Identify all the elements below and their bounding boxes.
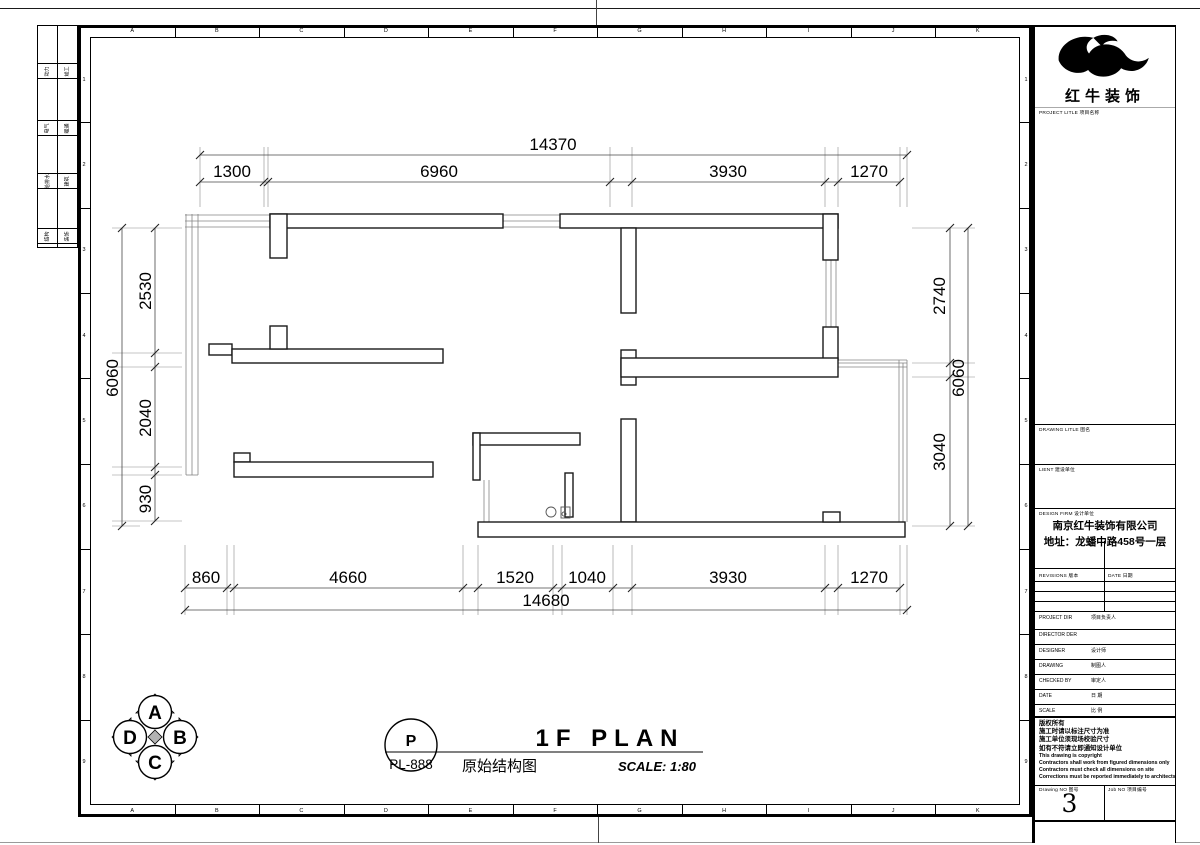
grid-number: 7 <box>78 589 90 595</box>
signature-cell <box>38 189 58 228</box>
signature-empty-row <box>38 26 77 64</box>
copyright-note-line: Corrections must be reported immediately… <box>1039 774 1175 781</box>
copyright-notes: 版权所有施工时请以标注尺寸为准施工单位须现场校验尺寸如有不符请立即通知设计单位T… <box>1035 718 1175 781</box>
fold-mark-top <box>596 0 597 25</box>
row-label-cn: 比 例 <box>1091 708 1102 714</box>
grid-tick <box>344 25 345 37</box>
grid-number: 6 <box>1020 503 1032 509</box>
grid-tick <box>1020 293 1032 294</box>
signature-cell <box>58 26 78 63</box>
grid-tick <box>1020 549 1032 550</box>
number-column-divider <box>1104 785 1105 820</box>
signature-cell <box>38 244 58 247</box>
grid-tick <box>513 25 514 37</box>
grid-tick <box>597 805 598 817</box>
signature-cell: 暖通 <box>58 121 78 135</box>
sheet-top-edge <box>0 8 1200 9</box>
grid-tick <box>78 634 90 635</box>
redniu-logo <box>1053 31 1158 83</box>
grid-letter: D <box>384 805 388 817</box>
grid-tick <box>259 25 260 37</box>
grid-number: 2 <box>78 162 90 168</box>
grid-tick <box>78 720 90 721</box>
divider <box>1035 508 1175 509</box>
grid-tick <box>513 805 514 817</box>
grid-tick <box>344 805 345 817</box>
signature-cell: 动力 <box>38 64 58 78</box>
titleblock-row: PROJECT DIR项目负责人 <box>1035 612 1175 629</box>
grid-letter: E <box>469 25 473 37</box>
divider <box>1035 107 1175 108</box>
grid-tick <box>78 464 90 465</box>
grid-tick <box>935 25 936 37</box>
copyright-note-line: 如有不符请立即通知设计单位 <box>1039 745 1175 753</box>
revisions-label: REVISIONS 版本 <box>1039 572 1078 579</box>
grid-tick <box>78 293 90 294</box>
grid-tick <box>78 208 90 209</box>
grid-tick <box>175 805 176 817</box>
company-name: 南京红牛装饰有限公司 <box>1035 518 1175 533</box>
row-label-cn: 项目负责人 <box>1091 615 1116 621</box>
grid-tick <box>1020 208 1032 209</box>
grid-band-left: 123456789 <box>78 37 90 805</box>
row-label-en: SCALE <box>1039 708 1091 714</box>
grid-tick <box>78 549 90 550</box>
grid-tick <box>78 122 90 123</box>
grid-band-bottom: ABCDEFGHIJK <box>90 805 1020 817</box>
grid-number: 1 <box>1020 77 1032 83</box>
signature-label-row: 结构装饰 <box>38 229 77 244</box>
grid-number: 1 <box>78 77 90 83</box>
design-firm-label: DESIGN FIRM 设计单位 <box>1039 510 1094 517</box>
grid-letter: K <box>976 805 980 817</box>
grid-letter: B <box>215 25 219 37</box>
client-label: LIENT 建设单位 <box>1039 466 1075 473</box>
grid-letter: I <box>808 805 810 817</box>
grid-tick <box>175 25 176 37</box>
row-label-en: CHECKED BY <box>1039 678 1091 684</box>
grid-tick <box>428 25 429 37</box>
grid-letter: F <box>553 805 556 817</box>
grid-tick <box>1020 464 1032 465</box>
row-label-en: DESIGNER <box>1039 648 1091 654</box>
signature-cell <box>58 136 78 173</box>
title-block: 红牛装饰 PROJECT LITLE 项目名称 DRAWING LITLE 图名… <box>1032 25 1176 843</box>
grid-letter: J <box>892 25 895 37</box>
copyright-note-line: 版权所有 <box>1039 720 1175 728</box>
grid-tick <box>1020 378 1032 379</box>
grid-letter: C <box>299 805 303 817</box>
signature-empty-row <box>38 79 77 121</box>
signature-cell <box>58 79 78 120</box>
grid-letter: G <box>637 805 641 817</box>
signature-label-row: 给排水建筑 <box>38 174 77 189</box>
signature-label: 动力 <box>44 66 51 76</box>
grid-number: 2 <box>1020 162 1032 168</box>
grid-letter: I <box>808 25 810 37</box>
grid-tick <box>78 378 90 379</box>
signature-label-row: 电气暖通 <box>38 121 77 136</box>
signature-cell: 给排水 <box>38 174 58 188</box>
grid-letter: A <box>130 25 134 37</box>
grid-number: 4 <box>78 333 90 339</box>
titleblock-row: DESIGNER设计师 <box>1035 644 1175 659</box>
grid-number: 8 <box>1020 674 1032 680</box>
grid-tick <box>428 805 429 817</box>
grid-letter: K <box>976 25 980 37</box>
signature-cell <box>58 189 78 228</box>
grid-number: 4 <box>1020 333 1032 339</box>
grid-letter: H <box>722 805 726 817</box>
row-label-cn: 设计师 <box>1091 648 1106 654</box>
signature-label: 电气 <box>44 123 51 133</box>
signature-empty-row <box>38 189 77 229</box>
signature-label: 竣工 <box>64 66 71 76</box>
grid-number: 9 <box>1020 759 1032 765</box>
signature-cell: 结构 <box>38 229 58 243</box>
grid-tick <box>935 805 936 817</box>
logo-text: 红牛装饰 <box>1035 85 1175 106</box>
titleblock-row: CHECKED BY审定人 <box>1035 674 1175 689</box>
grid-number: 6 <box>78 503 90 509</box>
grid-tick <box>597 25 598 37</box>
signature-label: 装饰 <box>64 231 71 241</box>
grid-number: 8 <box>78 674 90 680</box>
signature-cell <box>58 244 78 247</box>
copyright-note-line: This drawing is copyright <box>1039 753 1175 760</box>
grid-tick <box>766 25 767 37</box>
signature-label: 建筑 <box>64 176 71 186</box>
grid-number: 5 <box>1020 418 1032 424</box>
grid-tick <box>682 25 683 37</box>
grid-tick <box>851 805 852 817</box>
titleblock-row: DATE日 期 <box>1035 689 1175 704</box>
signature-cell <box>38 136 58 173</box>
signature-cell <box>38 79 58 120</box>
signature-strip-table: 动力竣工电气暖通给排水建筑结构装饰 <box>37 25 78 248</box>
row-label-en: DATE <box>1039 693 1091 699</box>
row-label-en: DRAWING <box>1039 663 1091 669</box>
titleblock-row: DIRECTOR DER <box>1035 629 1175 644</box>
grid-tick <box>766 805 767 817</box>
grid-number: 9 <box>78 759 90 765</box>
grid-band-top: ABCDEFGHIJK <box>90 25 1020 37</box>
grid-number: 7 <box>1020 589 1032 595</box>
drawing-frame-inner <box>90 37 1020 805</box>
row-label-cn: 审定人 <box>1091 678 1106 684</box>
fold-mark-bottom <box>598 817 599 843</box>
grid-tick <box>259 805 260 817</box>
signature-label: 暖通 <box>64 123 71 133</box>
grid-letter: B <box>215 805 219 817</box>
divider <box>1035 464 1175 465</box>
signature-cell: 竣工 <box>58 64 78 78</box>
grid-letter: F <box>553 25 556 37</box>
drawing-title-label: DRAWING LITLE 图名 <box>1039 426 1090 433</box>
grid-tick <box>1020 634 1032 635</box>
grid-number: 5 <box>78 418 90 424</box>
grid-tick <box>1020 122 1032 123</box>
divider <box>1035 424 1175 425</box>
project-title-label: PROJECT LITLE 项目名称 <box>1039 109 1100 116</box>
divider <box>1035 591 1175 592</box>
row-label-cn: 制图人 <box>1091 663 1106 669</box>
grid-letter: J <box>892 805 895 817</box>
signature-empty-row <box>38 136 77 174</box>
signature-label: 给排水 <box>44 174 51 188</box>
grid-band-right: 123456789 <box>1020 37 1032 805</box>
signature-cell <box>38 26 58 63</box>
row-label-en: DIRECTOR DER <box>1039 632 1091 638</box>
row-label-en: PROJECT DIR <box>1039 615 1091 621</box>
divider <box>1035 601 1175 602</box>
grid-letter: D <box>384 25 388 37</box>
drawing-no-value: 3 <box>1035 789 1104 818</box>
grid-tick <box>1020 720 1032 721</box>
grid-letter: H <box>722 25 726 37</box>
divider <box>1035 568 1175 569</box>
signature-empty-row <box>38 244 77 247</box>
job-no-label: Job NO 项目编号 <box>1108 786 1147 793</box>
grid-tick <box>682 805 683 817</box>
titleblock-row: DRAWING制图人 <box>1035 659 1175 674</box>
grid-number: 3 <box>1020 247 1032 253</box>
grid-tick <box>851 25 852 37</box>
divider <box>1035 820 1175 822</box>
copyright-note-line: Contractors shall work from figured dime… <box>1039 760 1175 767</box>
copyright-note-line: Contractors must check all dimensions on… <box>1039 767 1175 774</box>
company-address: 地址：龙蟠中路458号一层 <box>1035 534 1175 549</box>
signature-label-row: 动力竣工 <box>38 64 77 79</box>
personnel-rows: PROJECT DIR项目负责人DIRECTOR DERDESIGNER设计师D… <box>1035 611 1175 716</box>
grid-letter: A <box>130 805 134 817</box>
grid-letter: G <box>637 25 641 37</box>
signature-cell: 装饰 <box>58 229 78 243</box>
grid-number: 3 <box>78 247 90 253</box>
grid-letter: E <box>469 805 473 817</box>
divider <box>1035 581 1175 582</box>
signature-label: 结构 <box>44 231 51 241</box>
grid-letter: C <box>299 25 303 37</box>
date-column-label: DATE 日期 <box>1108 572 1133 579</box>
signature-cell: 建筑 <box>58 174 78 188</box>
revisions-column-divider <box>1104 541 1105 611</box>
copyright-note-line: 施工单位须现场校验尺寸 <box>1039 736 1175 744</box>
row-label-cn: 日 期 <box>1091 693 1102 699</box>
sheet-bottom-edge <box>0 842 1200 843</box>
signature-cell: 电气 <box>38 121 58 135</box>
